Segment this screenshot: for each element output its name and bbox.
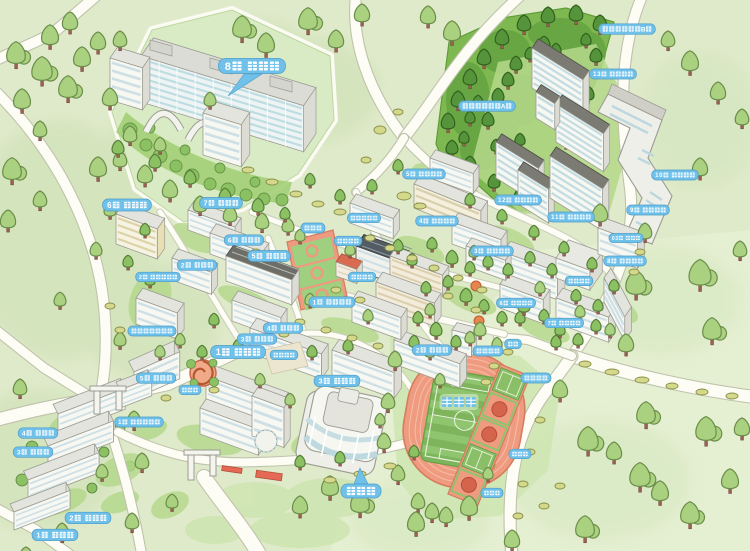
svg-text:6: 6 <box>500 301 503 307</box>
svg-text:8: 8 <box>225 61 231 73</box>
svg-text:4: 4 <box>22 430 26 437</box>
svg-text:3: 3 <box>17 449 21 456</box>
svg-text:5: 5 <box>140 375 144 382</box>
svg-text:B: B <box>641 26 646 33</box>
svg-text:1: 1 <box>36 531 40 540</box>
svg-text:2: 2 <box>181 262 185 269</box>
svg-text:7: 7 <box>548 321 551 327</box>
svg-text:6: 6 <box>107 201 112 210</box>
svg-text:2: 2 <box>69 514 73 523</box>
svg-text:2: 2 <box>416 347 420 354</box>
svg-text:3: 3 <box>615 236 618 242</box>
svg-text:A: A <box>501 103 506 110</box>
svg-text:5: 5 <box>252 254 256 261</box>
svg-text:4: 4 <box>267 325 271 332</box>
svg-text:1: 1 <box>313 299 317 306</box>
svg-text:6: 6 <box>228 237 232 244</box>
svg-text:1: 1 <box>216 347 221 357</box>
svg-text:7: 7 <box>204 201 208 208</box>
svg-text:3: 3 <box>241 336 245 343</box>
svg-text:2: 2 <box>139 275 142 281</box>
svg-text:3: 3 <box>318 377 322 386</box>
